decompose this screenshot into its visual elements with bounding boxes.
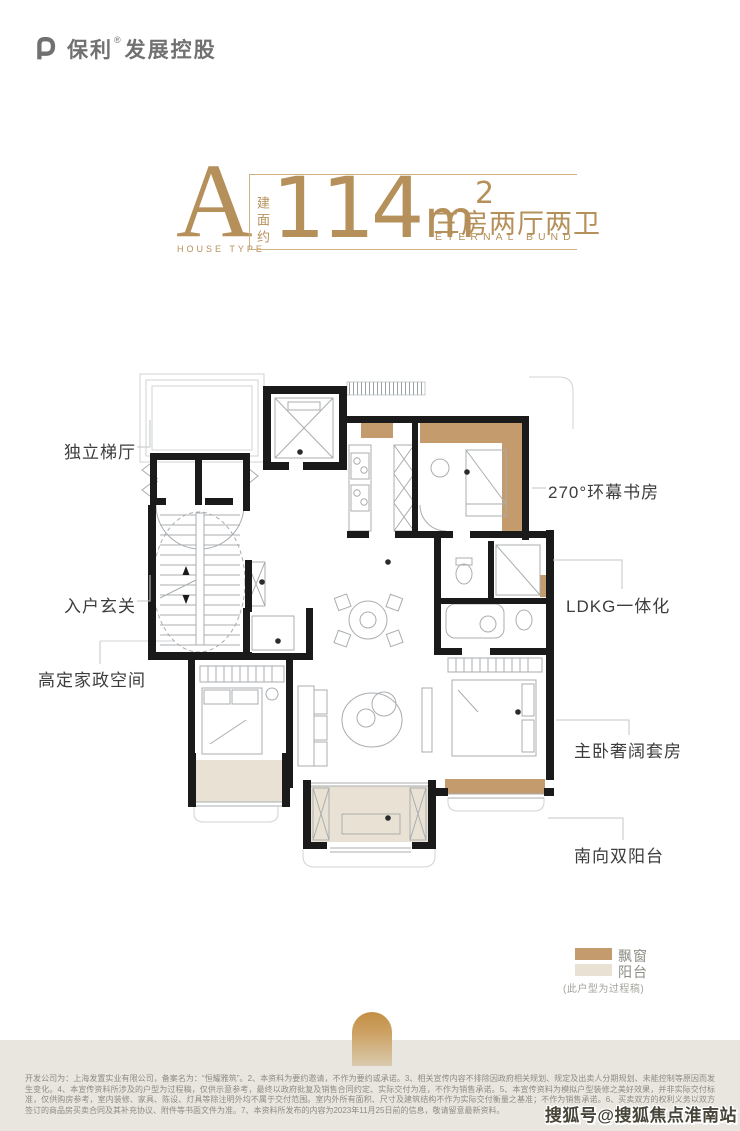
arch-ornament (352, 1012, 392, 1066)
legend-swatch-bay-window (575, 948, 612, 960)
label-panorama-study: 270°环幕书房 (548, 478, 659, 503)
label-housekeeping-space: 高定家政空间 (38, 666, 146, 691)
legend-note: (此户型为过程稿) (563, 980, 644, 995)
watermark: 搜狐号@搜狐焦点淮南站 (545, 1101, 737, 1126)
poster-page: 保利 ® 发展控股 A HOUSE TYPE 建面约 114 m 2 三房两厅两… (0, 0, 740, 1131)
label-master-suite: 主卧奢阔套房 (574, 737, 682, 762)
legend-swatch-balcony (575, 964, 612, 976)
label-entry-foyer: 入户玄关 (64, 592, 136, 617)
legend-label-balcony: 阳台 (618, 962, 648, 982)
label-south-double-balcony: 南向双阳台 (574, 842, 664, 867)
label-independent-elevator-hall: 独立梯厅 (64, 438, 136, 463)
label-ldkg-integration: LDKG一体化 (566, 592, 670, 617)
